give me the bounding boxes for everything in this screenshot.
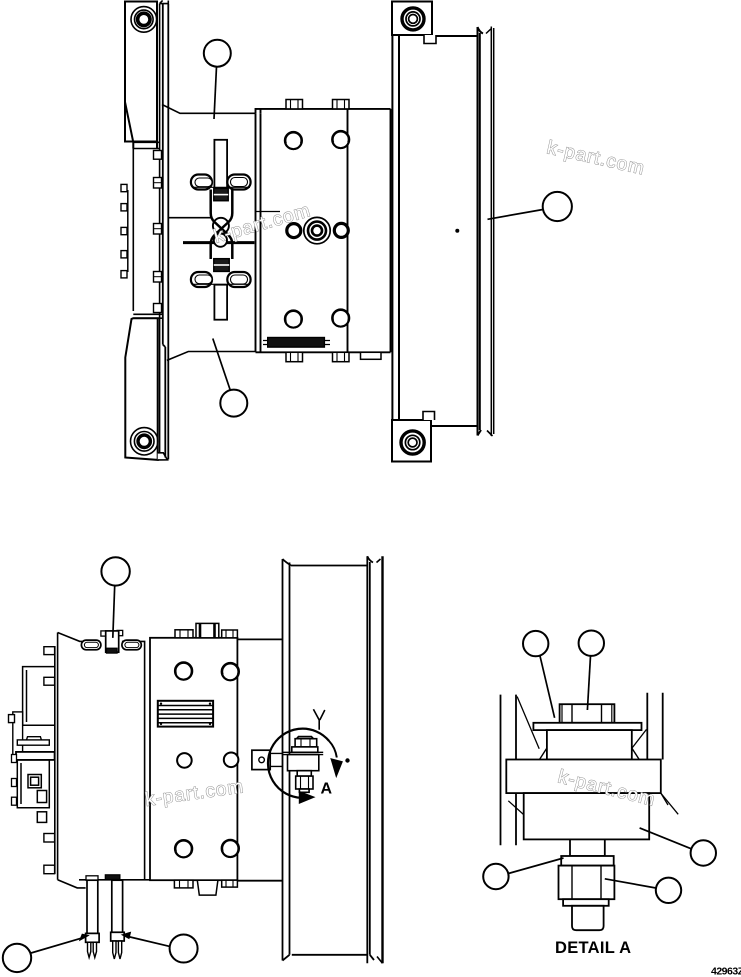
svg-text:A: A — [321, 781, 333, 798]
svg-text:DETAIL A: DETAIL A — [555, 939, 631, 957]
svg-text:42963Z: 42963Z — [711, 966, 741, 977]
